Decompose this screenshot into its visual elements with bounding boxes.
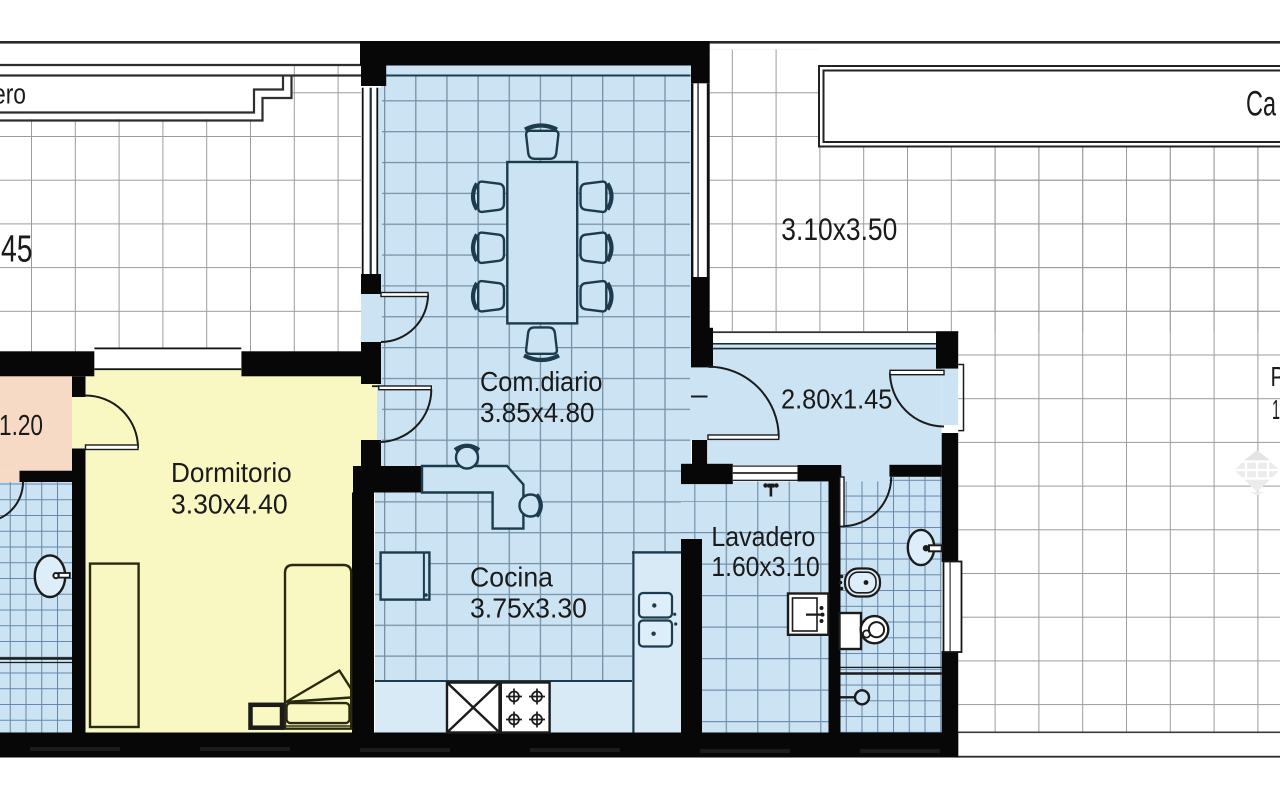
svg-text:1.: 1.	[1272, 394, 1280, 425]
svg-text:Ca: Ca	[1246, 85, 1276, 124]
svg-text:1.20: 1.20	[0, 410, 43, 442]
svg-text:Pa: Pa	[1271, 361, 1280, 392]
svg-text:Com.diario: Com.diario	[480, 366, 602, 397]
svg-text:1.60x3.10: 1.60x3.10	[711, 551, 819, 582]
svg-text:ero: ero	[0, 79, 26, 111]
svg-text:3.75x3.30: 3.75x3.30	[470, 593, 587, 624]
svg-text:3.30x4.40: 3.30x4.40	[171, 489, 288, 520]
svg-text:2.80x1.45: 2.80x1.45	[781, 384, 892, 415]
svg-text:3.85x4.80: 3.85x4.80	[480, 397, 595, 428]
svg-text:3.10x3.50: 3.10x3.50	[781, 212, 897, 247]
svg-text:Dormitorio: Dormitorio	[171, 457, 292, 488]
svg-text:45: 45	[1, 229, 33, 271]
svg-text:Cocina: Cocina	[470, 562, 554, 593]
svg-text:Lavadero: Lavadero	[711, 521, 815, 552]
